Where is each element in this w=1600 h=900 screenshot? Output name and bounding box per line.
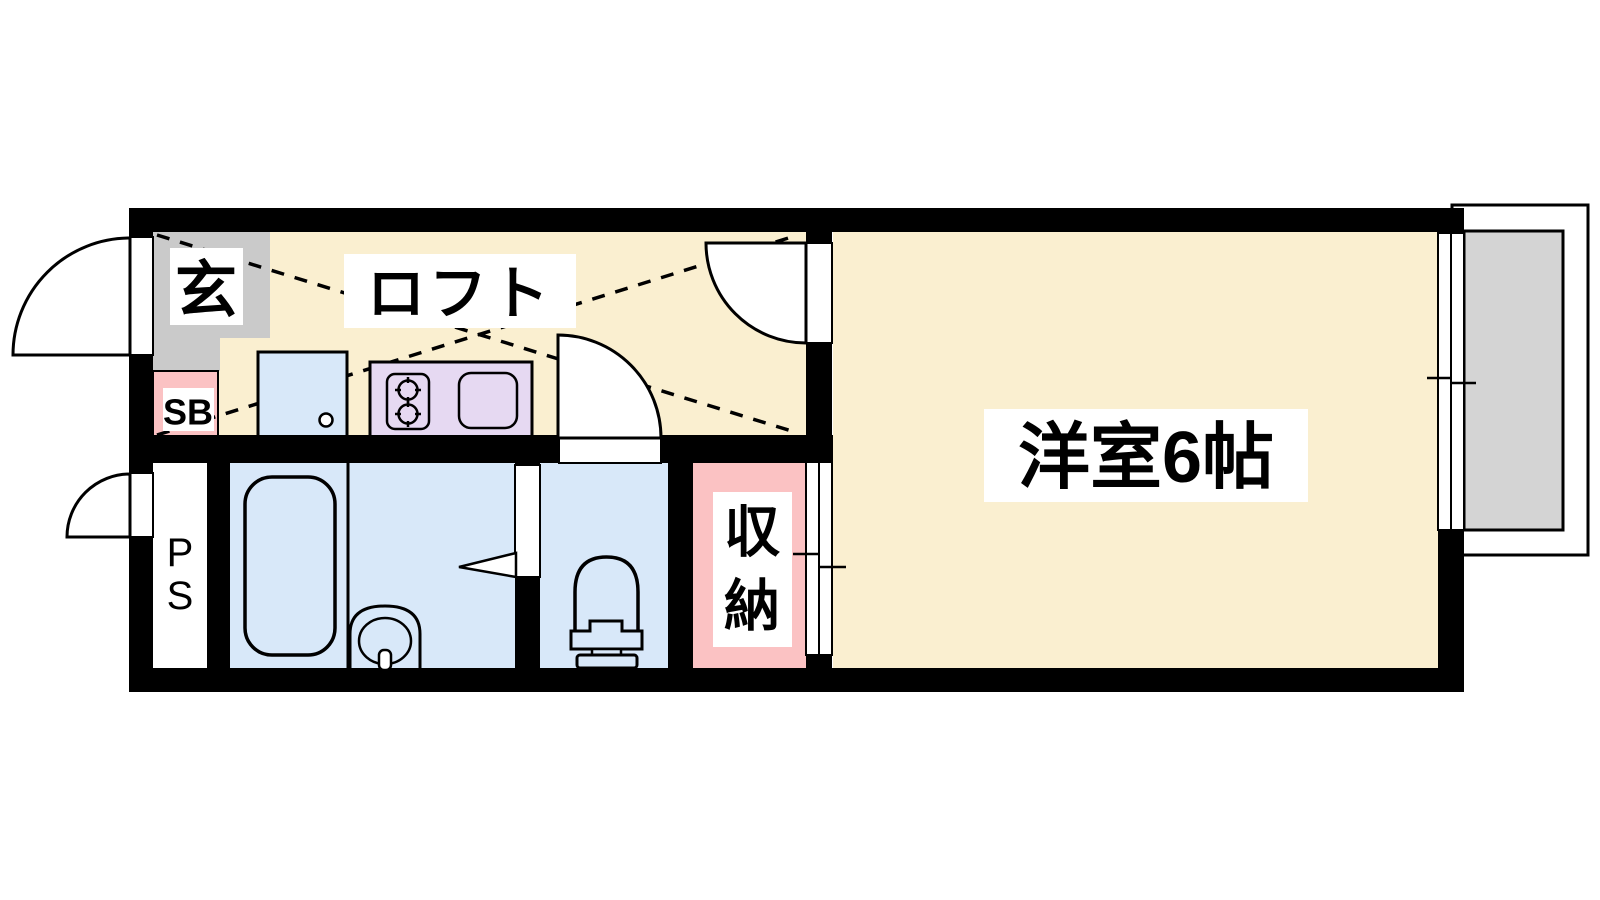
- storage-label-char1: 収: [724, 501, 780, 564]
- loft-label: ロフト: [367, 262, 553, 327]
- pipe-space-label-s: S: [167, 574, 194, 618]
- entrance-door-swing: [13, 238, 130, 355]
- entrance-doorway-gap: [130, 237, 153, 355]
- washbasin-tap: [379, 650, 391, 670]
- wall-ps-right: [207, 463, 230, 668]
- closet-sliding-panel-left: [806, 462, 819, 655]
- closet-sliding-panel-right: [819, 462, 832, 655]
- wall-right-upper: [1438, 208, 1464, 233]
- entrance-label: 玄: [175, 257, 237, 326]
- ps-doorway-gap: [130, 473, 153, 537]
- wall-band-left: [153, 435, 559, 463]
- wall-toilet-storage: [668, 463, 693, 668]
- storage-label-char2: 納: [724, 575, 780, 638]
- refrigerator-knob: [320, 414, 333, 427]
- wall-left-middle: [129, 355, 153, 473]
- wall-divider-middle: [806, 341, 832, 437]
- wall-top: [129, 208, 1464, 232]
- floor-plan-svg: 玄 ロフト SB P S 収 納 洋室6帖: [0, 0, 1600, 900]
- wall-bottom: [129, 668, 1464, 692]
- washroom-doorway-gap: [515, 465, 540, 577]
- wall-band-right: [661, 435, 833, 463]
- toilet-doorway-gap: [559, 438, 661, 463]
- pipe-space-label-p: P: [167, 531, 194, 575]
- western-room-label: 洋室6帖: [1018, 418, 1274, 498]
- wall-left-upper: [129, 208, 153, 239]
- floor-plan-image: 玄 ロフト SB P S 収 納 洋室6帖: [0, 0, 1600, 900]
- western-room-doorway-gap: [806, 243, 832, 343]
- balcony-floor: [1464, 231, 1563, 530]
- balcony-window-panel-left: [1438, 233, 1451, 530]
- wall-right-lower: [1438, 530, 1464, 692]
- toilet-tank: [577, 655, 637, 668]
- wall-washroom-toilet-lower: [515, 577, 540, 668]
- kitchen-fixtures: [258, 352, 532, 437]
- ps-door-swing: [67, 474, 130, 537]
- shoebox-label: SB: [163, 392, 213, 433]
- balcony-window-panel-right: [1451, 233, 1464, 530]
- balcony: [1452, 205, 1588, 555]
- wall-left-lower: [129, 537, 153, 692]
- refrigerator-space: [258, 352, 347, 437]
